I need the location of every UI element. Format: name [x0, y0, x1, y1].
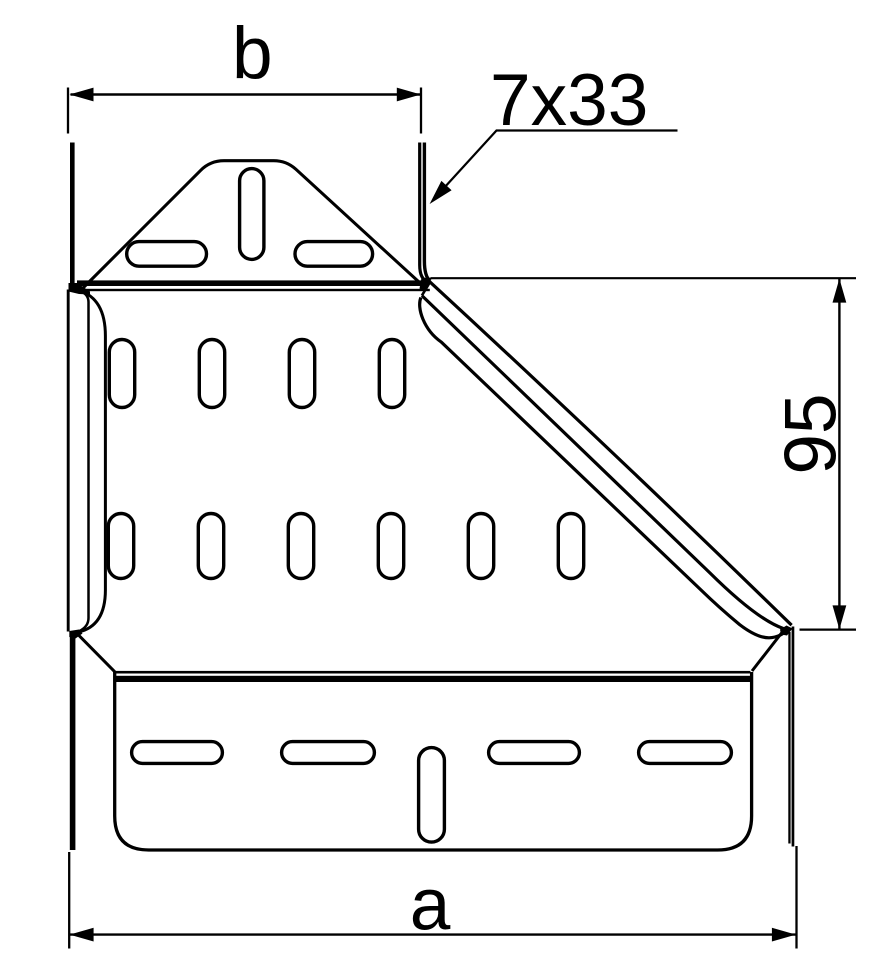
svg-text:a: a — [410, 865, 451, 946]
svg-text:7x33: 7x33 — [490, 60, 648, 141]
svg-text:95: 95 — [771, 393, 852, 474]
svg-text:b: b — [232, 13, 273, 94]
